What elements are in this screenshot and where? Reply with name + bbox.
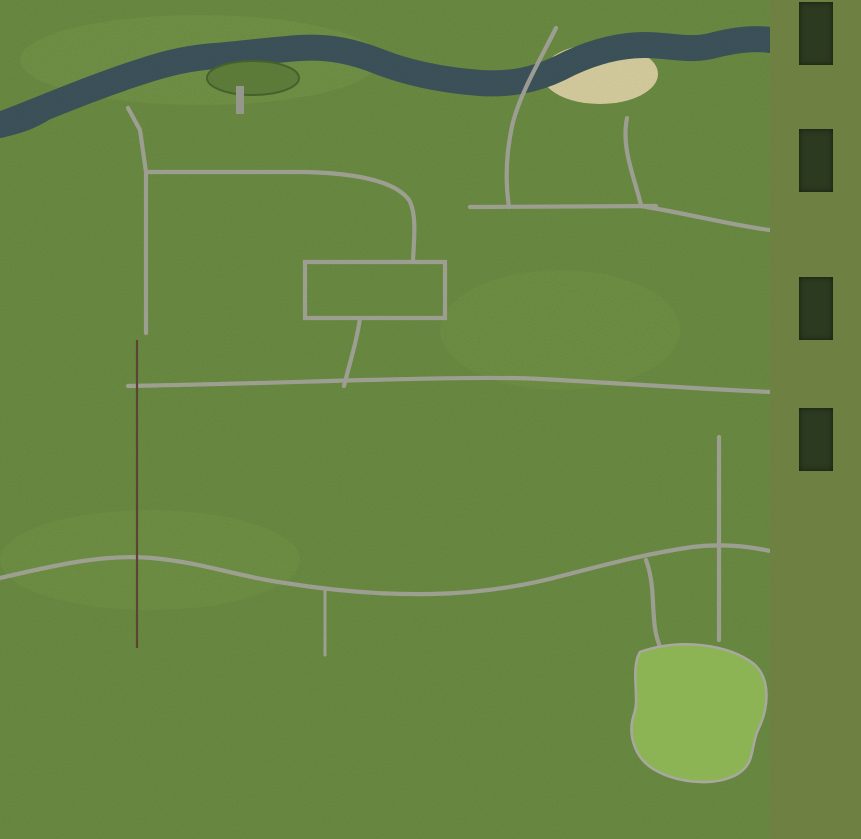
legend-item-corn bbox=[770, 408, 861, 478]
legend-item-wheat bbox=[770, 2, 861, 72]
crop-legend bbox=[770, 0, 861, 839]
legend-item-canola bbox=[770, 277, 861, 347]
barley-icon bbox=[799, 129, 833, 192]
map-annotations bbox=[0, 0, 770, 839]
wheat-icon bbox=[799, 2, 833, 65]
canola-icon bbox=[799, 277, 833, 340]
game-map-screenshot bbox=[0, 0, 861, 839]
legend-item-barley bbox=[770, 129, 861, 199]
farm-map bbox=[0, 0, 770, 839]
corn-icon bbox=[799, 408, 833, 471]
